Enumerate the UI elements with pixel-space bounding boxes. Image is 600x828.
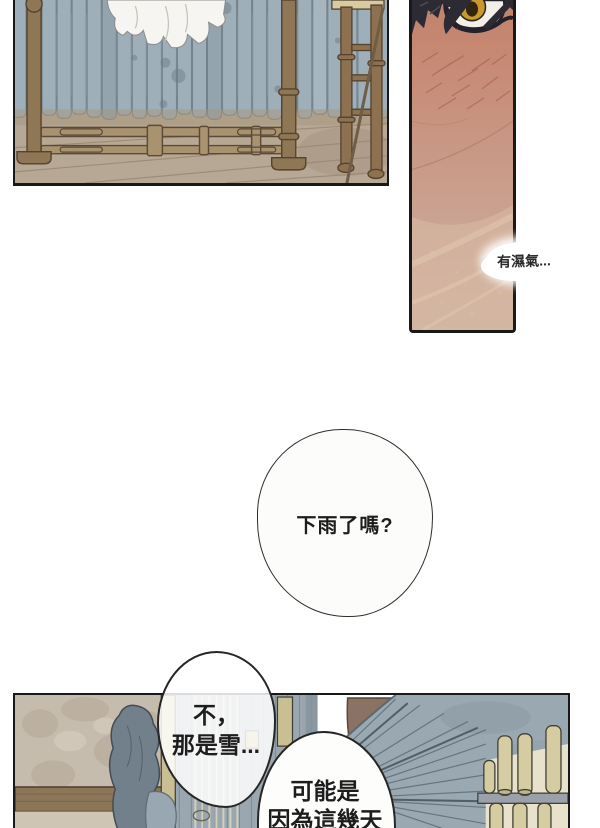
- panel-loom-scene: [13, 0, 389, 186]
- snow-text-line1: 不，: [152, 700, 280, 730]
- snow-text: 不， 那是雪...: [152, 700, 280, 760]
- rain-text: 下雨了嗎?: [296, 509, 393, 538]
- panel-face-closeup: [409, 0, 516, 333]
- speech-bubble-rain: 下雨了嗎?: [257, 429, 433, 617]
- snow-text-line2: 那是雪...: [152, 730, 280, 760]
- maybe-text-line1: 可能是: [245, 777, 405, 806]
- maybe-text-line2: 因為這幾天: [245, 806, 405, 828]
- loom-scene-art: [15, 0, 387, 183]
- maybe-text: 可能是 因為這幾天: [245, 777, 405, 828]
- face-art: [412, 0, 513, 330]
- humid-text: 有濕氣...: [489, 250, 559, 272]
- comic-page: 有濕氣... 下雨了嗎?: [0, 0, 600, 828]
